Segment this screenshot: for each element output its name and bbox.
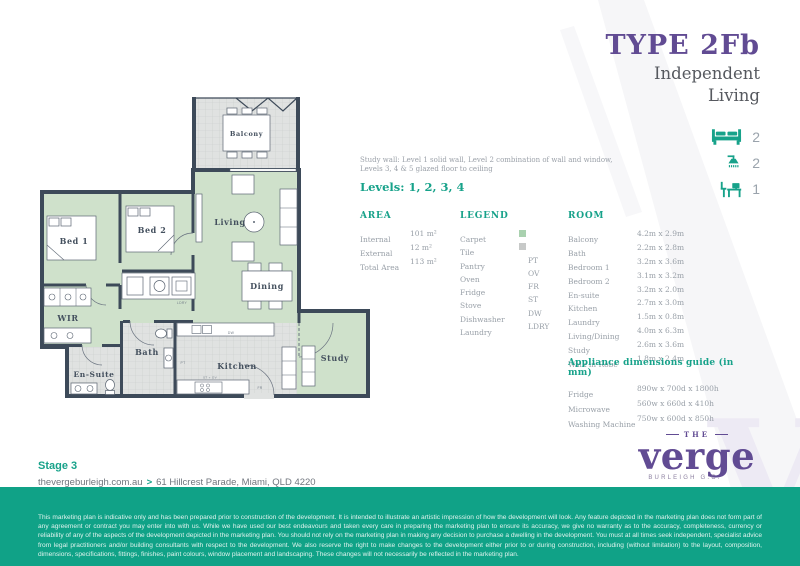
study-count: 1 xyxy=(750,181,760,197)
table-row: Bath2.2m x 2.8m xyxy=(568,243,743,257)
study-desk-icon xyxy=(720,181,742,198)
bed2-label: Bed 2 xyxy=(138,225,167,235)
living-label: Living xyxy=(214,217,245,227)
legend-table: LEGEND Carpet Tile PantryPT OvenOV Fridg… xyxy=(460,211,560,335)
table-row: LaundryLDRY xyxy=(460,322,560,335)
feature-bedrooms: 2 xyxy=(711,128,760,146)
bed1-label: Bed 1 xyxy=(60,236,89,246)
page-title: TYPE 2Fb xyxy=(606,30,760,61)
table-row: Total Area113 m² xyxy=(360,257,452,271)
area-table: AREA Internal101 m² External12 m² Total … xyxy=(360,211,452,271)
table-row: Study2.6m x 3.6m xyxy=(568,340,743,354)
appliance-table: Appliance dimensions guide (in mm) Fridg… xyxy=(568,358,748,429)
table-row: Washing Machine750w x 600d x 850h xyxy=(568,414,748,429)
fr-label: FR xyxy=(257,386,262,390)
note-line-2: Levels 3, 4 & 5 glazed floor to ceiling xyxy=(360,165,612,174)
table-row: Tile xyxy=(460,242,560,255)
table-row: OvenOV xyxy=(460,269,560,282)
dw-label: DW xyxy=(228,331,235,335)
bed1-furniture: Bed 1 xyxy=(47,216,96,260)
ensuite-label: En-Suite xyxy=(73,370,114,379)
table-row: Microwave560w x 660d x 410h xyxy=(568,399,748,414)
wir-label: WIR xyxy=(56,313,78,323)
feature-study: 1 xyxy=(711,180,760,198)
table-row: PantryPT xyxy=(460,256,560,269)
pt-label: PT xyxy=(181,361,186,365)
table-row: Living/Dining4.0m x 6.3m xyxy=(568,326,743,340)
floor-plan: Balcony Bed 1 xyxy=(30,95,370,405)
feature-summary: 2 2 1 xyxy=(711,128,760,206)
carpet-swatch xyxy=(519,230,526,237)
shower-icon xyxy=(725,155,742,171)
appliance-title: Appliance dimensions guide (in mm) xyxy=(568,358,748,378)
table-row: Bedroom 23.1m x 3.2m xyxy=(568,271,743,285)
subtitle-line-2: Living xyxy=(654,85,760,107)
bath-label: Bath xyxy=(135,347,159,357)
disclaimer-text: This marketing plan is indicative only a… xyxy=(38,513,762,559)
table-row: StoveST xyxy=(460,295,560,308)
bed2-furniture: Bed 2 xyxy=(126,206,174,252)
study-wall-note: Study wall: Level 1 solid wall, Level 2 … xyxy=(360,156,612,174)
page-subtitle: Independent Living xyxy=(654,63,760,107)
table-row: Bedroom 13.2m x 3.6m xyxy=(568,257,743,271)
study-label: Study xyxy=(321,353,350,363)
table-row: FridgeFR xyxy=(460,282,560,295)
note-line-1: Study wall: Level 1 solid wall, Level 2 … xyxy=(360,156,612,165)
ldry-label: LDRY xyxy=(177,301,188,305)
table-row: Kitchen2.7m x 3.0m xyxy=(568,298,743,312)
table-row: DishwasherDW xyxy=(460,309,560,322)
tile-swatch xyxy=(519,243,526,250)
table-row: En-suite3.2m x 2.0m xyxy=(568,285,743,299)
bathroom-count: 2 xyxy=(750,155,760,171)
table-row: External12 m² xyxy=(360,243,452,257)
table-row: Carpet xyxy=(460,229,560,242)
room-table: ROOM Balcony4.2m x 2.9m Bath2.2m x 2.8m … xyxy=(568,211,743,368)
stage-label: Stage 3 xyxy=(38,460,77,472)
subtitle-line-1: Independent xyxy=(654,63,760,85)
feature-bathrooms: 2 xyxy=(711,154,760,172)
table-row: Internal101 m² xyxy=(360,229,452,243)
table-row: Balcony4.2m x 2.9m xyxy=(568,229,743,243)
levels-label: Levels: 1, 2, 3, 4 xyxy=(360,180,465,194)
footer-disclaimer-bar: This marketing plan is indicative only a… xyxy=(0,487,800,566)
dining-label: Dining xyxy=(250,281,284,291)
logo-name: verge xyxy=(628,440,766,473)
legend-title: LEGEND xyxy=(460,211,560,221)
bedroom-count: 2 xyxy=(750,129,760,145)
table-row: Fridge890w x 700d x 1800h xyxy=(568,384,748,399)
verge-logo: THE verge BURLEIGH G.C. xyxy=(628,430,766,481)
table-row: Laundry1.5m x 0.8m xyxy=(568,312,743,326)
area-title: AREA xyxy=(360,211,452,221)
bed-icon xyxy=(711,129,742,145)
st-ov-label: ST + OV xyxy=(203,376,218,380)
balcony-label: Balcony xyxy=(230,130,263,138)
balcony-area: Balcony xyxy=(192,97,300,171)
room-title: ROOM xyxy=(568,211,743,221)
kitchen-label: Kitchen xyxy=(217,361,256,371)
